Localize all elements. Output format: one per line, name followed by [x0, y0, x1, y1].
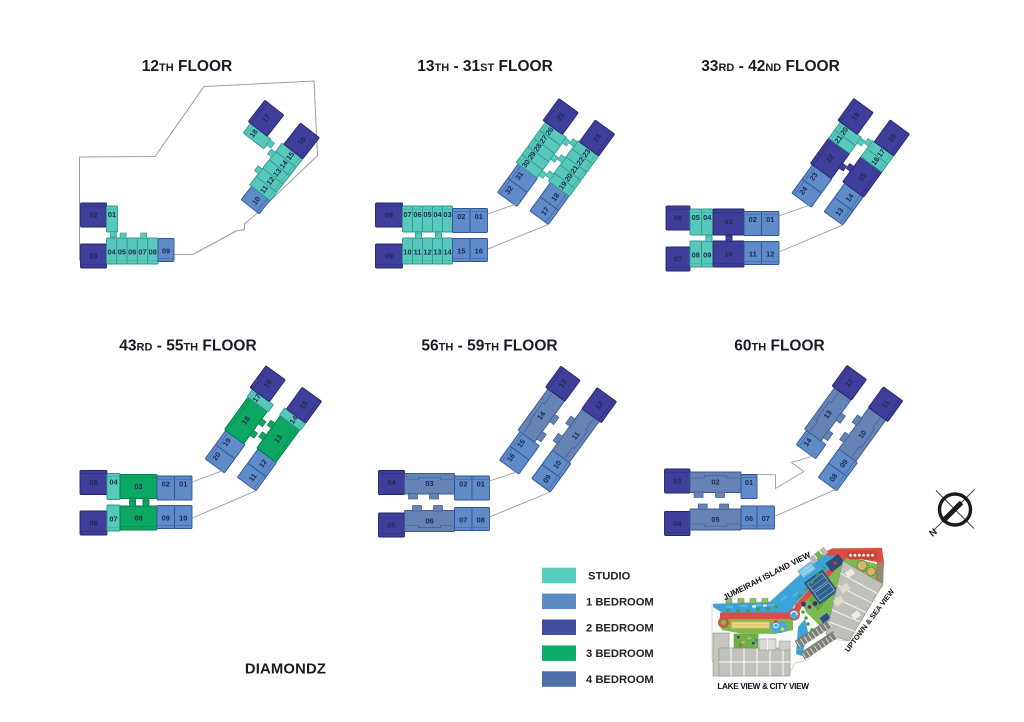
svg-text:01: 01 [108, 210, 116, 219]
svg-text:05: 05 [423, 210, 431, 219]
svg-text:01: 01 [745, 478, 753, 487]
svg-text:05: 05 [387, 520, 395, 529]
svg-text:07: 07 [674, 254, 682, 263]
svg-text:06: 06 [674, 213, 682, 222]
svg-text:03: 03 [724, 217, 732, 226]
svg-text:06: 06 [89, 518, 97, 527]
svg-text:01: 01 [477, 479, 485, 488]
svg-text:01: 01 [766, 215, 774, 224]
svg-text:04: 04 [387, 478, 396, 487]
svg-text:08: 08 [149, 248, 157, 257]
svg-text:01: 01 [179, 479, 187, 488]
svg-text:13: 13 [433, 248, 441, 257]
svg-text:12: 12 [766, 250, 774, 259]
svg-text:STUDIO: STUDIO [588, 571, 631, 583]
svg-text:09: 09 [385, 251, 393, 260]
svg-text:06: 06 [413, 210, 421, 219]
svg-text:10: 10 [403, 248, 411, 257]
svg-text:12TH FLOOR: 12TH FLOOR [142, 58, 232, 75]
svg-text:08: 08 [134, 513, 142, 522]
svg-text:04: 04 [433, 210, 442, 219]
svg-text:11: 11 [414, 248, 422, 257]
svg-text:04: 04 [703, 213, 712, 222]
svg-text:05: 05 [118, 248, 126, 257]
svg-text:08: 08 [692, 251, 700, 260]
svg-text:2 BEDROOM: 2 BEDROOM [586, 622, 654, 634]
svg-text:02: 02 [457, 212, 465, 221]
svg-text:10: 10 [179, 514, 187, 523]
svg-text:07: 07 [109, 515, 117, 524]
svg-text:03: 03 [673, 476, 681, 485]
svg-text:12: 12 [423, 248, 431, 257]
svg-text:02: 02 [711, 478, 719, 487]
svg-text:07: 07 [403, 210, 411, 219]
svg-text:DIAMONDZ: DIAMONDZ [245, 662, 326, 678]
svg-text:06: 06 [128, 248, 136, 257]
svg-text:03: 03 [134, 482, 142, 491]
svg-text:3 BEDROOM: 3 BEDROOM [586, 648, 654, 660]
svg-text:04: 04 [673, 519, 682, 528]
svg-text:09: 09 [162, 247, 170, 256]
svg-text:08: 08 [477, 516, 485, 525]
svg-text:04: 04 [109, 478, 118, 487]
svg-text:03: 03 [443, 210, 451, 219]
svg-text:07: 07 [762, 514, 770, 523]
svg-text:09: 09 [162, 514, 170, 523]
svg-text:4 BEDROOM: 4 BEDROOM [586, 674, 654, 686]
svg-text:15: 15 [457, 247, 465, 256]
svg-text:02: 02 [89, 210, 97, 219]
svg-text:1 BEDROOM: 1 BEDROOM [586, 596, 654, 608]
svg-text:LAKE VIEW & CITY VIEW: LAKE VIEW & CITY VIEW [717, 682, 809, 691]
svg-text:07: 07 [459, 516, 467, 525]
svg-text:03: 03 [89, 251, 97, 260]
svg-text:02: 02 [459, 479, 467, 488]
svg-text:05: 05 [692, 213, 700, 222]
svg-text:04: 04 [107, 248, 116, 257]
svg-text:05: 05 [89, 478, 97, 487]
svg-text:03: 03 [425, 479, 433, 488]
svg-text:06: 06 [425, 516, 433, 525]
svg-text:14: 14 [443, 248, 452, 257]
svg-text:05: 05 [711, 515, 719, 524]
svg-text:11: 11 [749, 250, 757, 259]
svg-text:60TH FLOOR: 60TH FLOOR [734, 338, 824, 355]
svg-text:02: 02 [162, 479, 170, 488]
svg-text:06: 06 [745, 514, 753, 523]
svg-text:01: 01 [475, 212, 483, 221]
svg-text:09: 09 [703, 251, 711, 260]
svg-text:08: 08 [385, 210, 393, 219]
svg-text:07: 07 [138, 248, 146, 257]
svg-text:10: 10 [724, 249, 732, 258]
svg-text:16: 16 [475, 247, 483, 256]
svg-text:02: 02 [749, 215, 757, 224]
